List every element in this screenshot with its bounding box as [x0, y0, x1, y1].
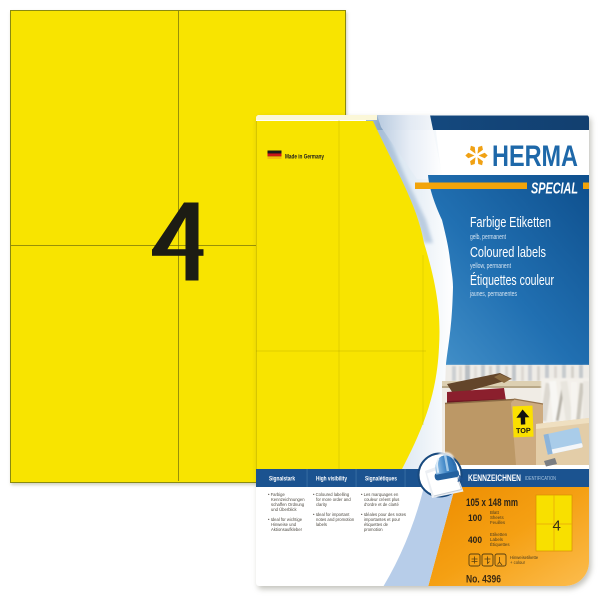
- svg-text:Signalstark: Signalstark: [269, 476, 295, 483]
- svg-text:No. 4396: No. 4396: [466, 574, 501, 586]
- svg-text:und Überblick: und Überblick: [271, 507, 298, 512]
- svg-text:High visibility: High visibility: [316, 476, 347, 483]
- svg-text:400: 400: [468, 535, 482, 546]
- svg-text:d'ordre et de clarté: d'ordre et de clarté: [364, 502, 399, 507]
- svg-text:105 x 148 mm: 105 x 148 mm: [466, 497, 518, 509]
- svg-text:Signalétiques: Signalétiques: [365, 476, 397, 483]
- svg-text:+ colour: + colour: [510, 560, 526, 565]
- svg-text:SPECIAL: SPECIAL: [531, 181, 578, 198]
- svg-text:Étiquettes: Étiquettes: [490, 542, 510, 547]
- svg-text:Made in Germany: Made in Germany: [285, 155, 325, 161]
- svg-text:gelb, permanent: gelb, permanent: [470, 234, 506, 241]
- svg-text:HERMA: HERMA: [492, 140, 578, 173]
- svg-text:Coloured labels: Coloured labels: [470, 245, 546, 261]
- svg-text:Aktionsaufkleber: Aktionsaufkleber: [271, 527, 303, 532]
- svg-text:labels: labels: [316, 522, 327, 527]
- svg-text:Feuilles: Feuilles: [490, 520, 506, 525]
- svg-text:KENNZEICHNEN: KENNZEICHNEN: [468, 473, 521, 483]
- svg-text:IDENTIFICATION: IDENTIFICATION: [525, 476, 556, 482]
- svg-text:TOP: TOP: [516, 426, 531, 436]
- svg-text:Étiquettes couleur: Étiquettes couleur: [470, 272, 554, 289]
- svg-text:4: 4: [553, 518, 561, 535]
- svg-text:100: 100: [468, 513, 482, 524]
- svg-text:yellow, permanent: yellow, permanent: [470, 263, 511, 270]
- svg-text:clarity: clarity: [316, 502, 328, 507]
- svg-text:promotion: promotion: [364, 527, 383, 532]
- svg-text:jaunes, permanentes: jaunes, permanentes: [469, 291, 517, 298]
- svg-text:Farbige Etiketten: Farbige Etiketten: [470, 215, 551, 231]
